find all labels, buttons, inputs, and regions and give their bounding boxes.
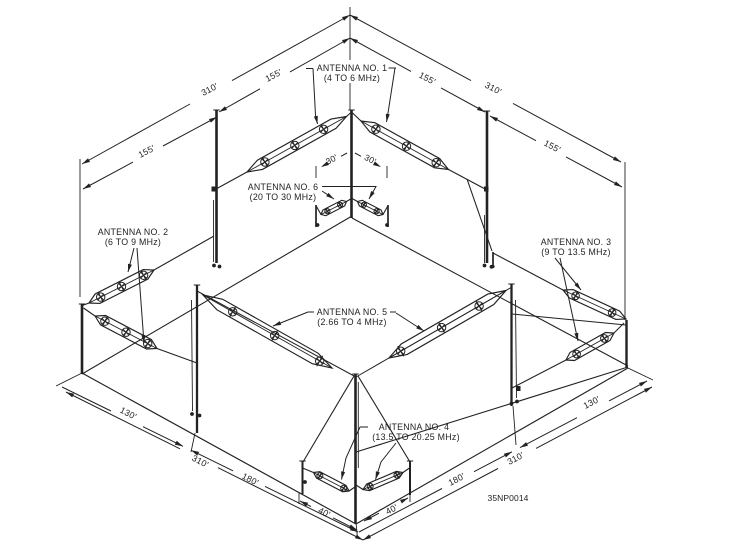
svg-text:35NP0014: 35NP0014: [488, 493, 529, 503]
svg-text:(20 TO 30 MHz): (20 TO 30 MHz): [250, 192, 317, 202]
svg-text:ANTENNA NO. 4: ANTENNA NO. 4: [379, 422, 450, 432]
svg-text:ANTENNA NO. 3: ANTENNA NO. 3: [541, 237, 612, 247]
svg-text:(13.5 TO 20.25 MHz): (13.5 TO 20.25 MHz): [372, 432, 460, 442]
svg-text:ANTENNA NO. 6: ANTENNA NO. 6: [248, 182, 319, 192]
svg-text:(6 TO 9 MHz): (6 TO 9 MHz): [105, 237, 161, 247]
svg-text:ANTENNA NO. 1: ANTENNA NO. 1: [317, 63, 388, 73]
svg-text:ANTENNA NO. 2: ANTENNA NO. 2: [98, 227, 169, 237]
svg-text:ANTENNA NO. 5: ANTENNA NO. 5: [317, 307, 388, 317]
svg-text:(4 TO 6 MHz): (4 TO 6 MHz): [324, 73, 380, 83]
svg-text:(2.66 TO 4 MHz): (2.66 TO 4 MHz): [317, 317, 386, 327]
svg-text:(9 TO 13.5 MHz): (9 TO 13.5 MHz): [541, 247, 610, 257]
